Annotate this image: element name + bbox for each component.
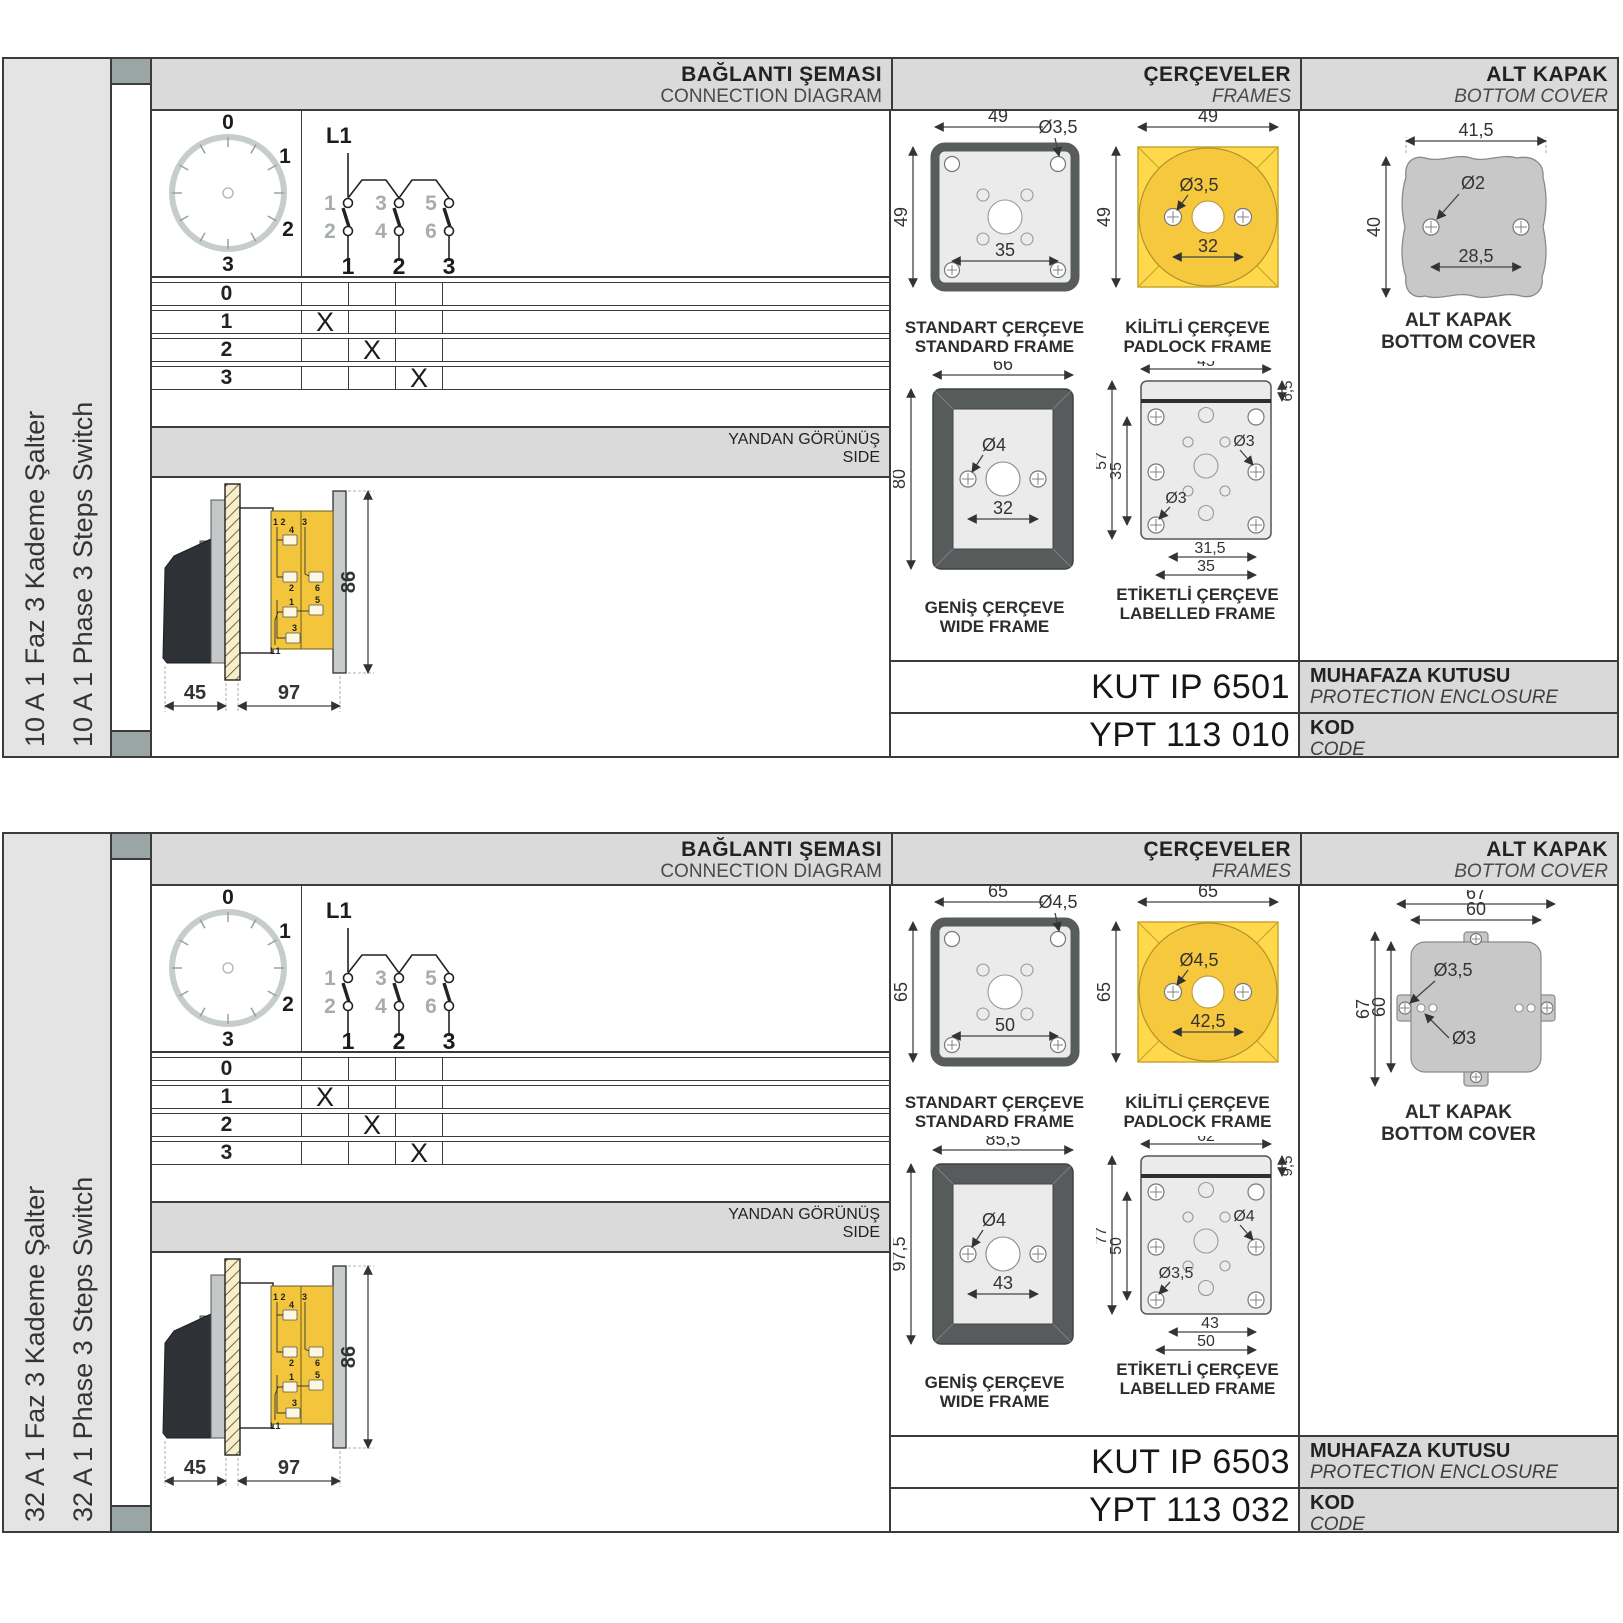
- dial-position-0: 0: [222, 886, 234, 909]
- dim-frame-height: 65: [1096, 982, 1114, 1002]
- standard-frame-caption: STANDART ÇERÇEVE STANDARD FRAME: [893, 1093, 1096, 1131]
- terminal-3-label: 3: [292, 1398, 297, 1408]
- terminal-3-top-label: 3: [302, 517, 307, 527]
- dim-frame-width: 62: [1197, 1136, 1215, 1145]
- diagram-row: 0 1 2 3 L1: [152, 886, 889, 1053]
- side-view-header: YANDAN GÖRÜNÜŞ SIDE: [152, 1201, 889, 1253]
- caption-en: WIDE FRAME: [893, 617, 1096, 636]
- terminal-3-top-label: 3: [302, 1292, 307, 1302]
- enclosure-label-tr: MUHAFAZA KUTUSU: [1310, 665, 1617, 687]
- standard-frame: 49 Ø3,5 49 35 STANDART ÇERÇEVE STANDARD …: [893, 111, 1096, 356]
- dim-hole-diameter: Ø4,5: [1038, 892, 1077, 912]
- dim-body-depth: 97: [278, 1457, 300, 1479]
- enclosure-code: KUT IP 6501: [1091, 668, 1290, 707]
- caption-tr: KİLİTLİ ÇERÇEVE: [1096, 318, 1299, 337]
- caption-tr: ALT KAPAK: [1300, 1102, 1617, 1124]
- caption-en: BOTTOM COVER: [1300, 332, 1617, 354]
- pole-1-label: 1: [342, 253, 355, 276]
- dial-cell: 0 1 2 3: [152, 111, 302, 276]
- dim-hole-right: Ø3: [1233, 433, 1254, 450]
- connection-diagram: L1: [302, 111, 889, 276]
- terminal-4-label: 4: [289, 525, 294, 535]
- dial-cell: 0 1 2 3: [152, 886, 302, 1051]
- dim-hole-pitch: 43: [993, 1273, 1013, 1293]
- dim-cover-width-inner: 60: [1465, 899, 1485, 919]
- dim-hole-bottom: Ø3,5: [1159, 1265, 1194, 1282]
- contact-6-label: 6: [425, 220, 437, 243]
- terminal-pair-label: 1 2: [273, 1292, 286, 1302]
- dim-hole-bottom: Ø3: [1165, 490, 1186, 507]
- header-cover-en: BOTTOM COVER: [1302, 86, 1608, 107]
- bottom-cover-cell: 67 60 67 60 Ø3,5 Ø3 ALT KAPAK BOTTOM COV…: [1300, 890, 1617, 1146]
- cover-caption: ALT KAPAK BOTTOM COVER: [1300, 310, 1617, 354]
- wide-frame-caption: GENİŞ ÇERÇEVE WIDE FRAME: [893, 598, 1096, 636]
- cell: [349, 1142, 396, 1164]
- side-view-title-en: SIDE: [152, 1224, 880, 1242]
- padlock-frame: Ø4,5 65 65 42,5 KİLİTLİ ÇERÇEVE PADLOCK …: [1096, 886, 1299, 1131]
- wide-frame-drawing: Ø4 66 80 32: [893, 361, 1096, 596]
- wide-frame-drawing: Ø4 85,5 97,5 43: [893, 1136, 1096, 1371]
- wide-frame-caption: GENİŞ ÇERÇEVE WIDE FRAME: [893, 1373, 1096, 1411]
- side-view-header: YANDAN GÖRÜNÜŞ SIDE: [152, 426, 889, 478]
- diagram-row: 0 1 2 3 L1: [152, 111, 889, 278]
- contact-5-label: 5: [425, 192, 437, 215]
- dim-pitch-2: 35: [1197, 558, 1215, 575]
- table-row: 3 X: [152, 1141, 889, 1165]
- terminal-2-label: 2: [289, 1358, 294, 1368]
- dim-frame-height: 97,5: [893, 1236, 909, 1271]
- caption-en: LABELLED FRAME: [1096, 1379, 1299, 1398]
- contact-3-label: 3: [375, 967, 387, 990]
- dim-hole-pitch-v: 50: [1108, 1237, 1125, 1255]
- header-connection-tr: BAĞLANTI ŞEMASI: [152, 63, 882, 86]
- side-view-cell: 1 2 3 4 2 6 1 5 3 L1 45 97: [152, 480, 889, 756]
- enclosure-label-cell: MUHAFAZA KUTUSU PROTECTION ENCLOSURE: [1300, 1435, 1617, 1487]
- side-view-drawing: 1 2 3 4 2 6 1 5 3 L1 45 97: [152, 1255, 889, 1531]
- table-row: 0: [152, 282, 889, 306]
- header-connection-tr: BAĞLANTI ŞEMASI: [152, 838, 882, 861]
- enclosure-label-en: PROTECTION ENCLOSURE: [1310, 1462, 1617, 1483]
- header-cover-tr: ALT KAPAK: [1302, 838, 1608, 861]
- connection-diagram: L1: [302, 886, 889, 1051]
- dim-hole-diameter: Ø4: [982, 1210, 1006, 1230]
- dim-frame-width: 49: [1198, 111, 1218, 126]
- product-label-english: 32 A 1 Phase 3 Steps Switch: [68, 1177, 99, 1522]
- terminal-1-label: 1: [289, 1372, 294, 1382]
- dim-pitch-1: 43: [1201, 1315, 1219, 1332]
- caption-en: STANDARD FRAME: [893, 337, 1096, 356]
- enclosure-label-tr: MUHAFAZA KUTUSU: [1310, 1440, 1617, 1462]
- dim-hole-pitch: 35: [995, 240, 1015, 260]
- cell: [396, 1058, 443, 1080]
- dim-cover-height: 40: [1364, 217, 1384, 237]
- dim-hole-right: Ø4: [1233, 1208, 1254, 1225]
- dim-frame-width: 85,5: [985, 1136, 1020, 1149]
- cell: [302, 339, 349, 361]
- terminal-2-label: 2: [289, 583, 294, 593]
- terminal-l1-label: L1: [270, 646, 281, 656]
- table-row: 2 X: [152, 338, 889, 362]
- cell-empty: [443, 1058, 889, 1080]
- terminal-l1-label: L1: [270, 1421, 281, 1431]
- enclosure-code: KUT IP 6503: [1091, 1443, 1290, 1482]
- dial-position-3: 3: [222, 253, 234, 276]
- contact-1-label: 1: [324, 192, 336, 215]
- standard-frame-caption: STANDART ÇERÇEVE STANDARD FRAME: [893, 318, 1096, 356]
- labelled-frame: 62 9,5 77 50 Ø4 Ø3,5 43 50: [1096, 1136, 1299, 1398]
- frames-column: 49 Ø3,5 49 35 STANDART ÇERÇEVE STANDARD …: [891, 111, 1300, 756]
- labelled-frame-drawing: 45 6,5 57 35 Ø3 Ø3 31,5 35: [1096, 361, 1299, 583]
- pole-2-label: 2: [393, 253, 406, 276]
- row-label: 1: [152, 1086, 302, 1108]
- terminal-pair-label: 1 2: [273, 517, 286, 527]
- header-connection-en: CONNECTION DIAGRAM: [152, 86, 882, 107]
- row-label: 1: [152, 311, 302, 333]
- table-row: 2 X: [152, 1113, 889, 1137]
- caption-en: PADLOCK FRAME: [1096, 1112, 1299, 1131]
- padlock-frame-drawing: Ø3,5 49 49 32: [1096, 111, 1299, 316]
- dim-body-height: 86: [338, 1346, 360, 1368]
- cell: [349, 311, 396, 333]
- padlock-frame-caption: KİLİTLİ ÇERÇEVE PADLOCK FRAME: [1096, 318, 1299, 356]
- caption-tr: STANDART ÇERÇEVE: [893, 318, 1096, 337]
- dial-position-0: 0: [222, 111, 234, 134]
- contact-4-label: 4: [375, 220, 387, 243]
- dim-cover-width: 41,5: [1458, 120, 1493, 140]
- dim-frame-width: 65: [1198, 886, 1218, 901]
- cell: [396, 311, 443, 333]
- cell: [302, 1058, 349, 1080]
- cell: [349, 283, 396, 305]
- product-label-english: 10 A 1 Phase 3 Steps Switch: [68, 402, 99, 747]
- side-view-drawing: 1 2 3 4 2 6 1 5 3 L1 45 97: [152, 480, 889, 756]
- contact-3-label: 3: [375, 192, 387, 215]
- dim-frame-width: 66: [993, 361, 1013, 374]
- row-label: 2: [152, 1114, 302, 1136]
- product-block-32a: 32 A 1 Faz 3 Kademe Şalter 32 A 1 Phase …: [2, 832, 1619, 1533]
- product-code: YPT 113 032: [1089, 1491, 1290, 1530]
- dim-cover-hole-1: Ø3,5: [1433, 960, 1472, 980]
- header-frames-tr: ÇERÇEVELER: [893, 63, 1291, 86]
- dim-hole-pitch-v: 35: [1108, 462, 1125, 480]
- header-connection: BAĞLANTI ŞEMASI CONNECTION DIAGRAM: [152, 59, 891, 111]
- cell: X: [302, 1086, 349, 1108]
- side-view-title-en: SIDE: [152, 449, 880, 467]
- product-label-turkish: 10 A 1 Faz 3 Kademe Şalter: [20, 411, 51, 747]
- pole-3-label: 3: [443, 1028, 456, 1051]
- contacts-cell: L1: [302, 111, 889, 276]
- code-value-row: YPT 113 010: [891, 712, 1298, 756]
- padlock-frame-caption: KİLİTLİ ÇERÇEVE PADLOCK FRAME: [1096, 1093, 1299, 1131]
- cell: [302, 1142, 349, 1164]
- cell-empty: [443, 311, 889, 333]
- padlock-frame: Ø3,5 49 49 32 KİLİTLİ ÇERÇEVE PADLOCK FR…: [1096, 111, 1299, 356]
- caption-tr: STANDART ÇERÇEVE: [893, 1093, 1096, 1112]
- bottom-cover-drawing: 67 60 67 60 Ø3,5 Ø3: [1301, 890, 1617, 1102]
- labelled-frame-caption: ETİKETLİ ÇERÇEVE LABELLED FRAME: [1096, 1360, 1299, 1398]
- enclosure-value-row: KUT IP 6501: [891, 660, 1298, 712]
- padlock-frame-drawing: Ø4,5 65 65 42,5: [1096, 886, 1299, 1091]
- header-frames-tr: ÇERÇEVELER: [893, 838, 1291, 861]
- dim-pitch-1: 31,5: [1194, 540, 1225, 557]
- gutter-square-bottom: [112, 730, 150, 756]
- cover-caption: ALT KAPAK BOTTOM COVER: [1300, 1102, 1617, 1146]
- header-frames-en: FRAMES: [893, 86, 1291, 107]
- line-l1-label: L1: [326, 123, 352, 148]
- dial-position-1: 1: [279, 145, 291, 168]
- terminal-6-label: 6: [315, 1358, 320, 1368]
- code-label-cell: KOD CODE: [1300, 1487, 1617, 1531]
- cell: X: [396, 1142, 443, 1164]
- side-view-title-tr: YANDAN GÖRÜNÜŞ: [152, 1206, 880, 1224]
- row-label: 3: [152, 367, 302, 389]
- caption-en: LABELLED FRAME: [1096, 604, 1299, 623]
- switch-dial-diagram: 0 1 2 3: [152, 886, 300, 1051]
- dim-frame-width: 49: [988, 111, 1008, 126]
- contact-6-label: 6: [425, 995, 437, 1018]
- table-row: 1 X: [152, 310, 889, 334]
- dim-hole-diameter: Ø3,5: [1179, 175, 1218, 195]
- line-l1-label: L1: [326, 898, 352, 923]
- switching-table: 0 1 X 2 X: [152, 278, 889, 390]
- product-code: YPT 113 010: [1089, 716, 1290, 755]
- pole-3-label: 3: [443, 253, 456, 276]
- cover-column: 41,5 40 Ø2 28,5 ALT KAPAK BOTTOM COVER M…: [1300, 111, 1617, 756]
- caption-tr: ETİKETLİ ÇERÇEVE: [1096, 1360, 1299, 1379]
- gutter-square-top: [112, 59, 150, 85]
- dim-front-depth: 45: [184, 1457, 206, 1479]
- cell: X: [349, 339, 396, 361]
- dial-position-1: 1: [279, 920, 291, 943]
- connection-column: 0 1 2 3 L1: [152, 111, 891, 756]
- cell-empty: [443, 283, 889, 305]
- enclosure-label-en: PROTECTION ENCLOSURE: [1310, 687, 1617, 708]
- dial-position-2: 2: [282, 993, 294, 1016]
- switch-dial-diagram: 0 1 2 3: [152, 111, 300, 276]
- gutter-column: [112, 834, 152, 1531]
- cell-empty: [443, 1086, 889, 1108]
- terminal-3-label: 3: [292, 623, 297, 633]
- code-label-en: CODE: [1310, 1514, 1617, 1535]
- cell: [396, 1114, 443, 1136]
- enclosure-value-row: KUT IP 6503: [891, 1435, 1298, 1487]
- dim-front-depth: 45: [184, 682, 206, 704]
- table-row: 3 X: [152, 366, 889, 390]
- cell: [396, 339, 443, 361]
- gutter-square-top: [112, 834, 150, 860]
- row-label: 0: [152, 1058, 302, 1080]
- header-cover: ALT KAPAK BOTTOM COVER: [1300, 834, 1617, 886]
- dim-body-height: 86: [338, 571, 360, 593]
- terminal-5-label: 5: [315, 595, 320, 605]
- caption-en: BOTTOM COVER: [1300, 1124, 1617, 1146]
- content-area: BAĞLANTI ŞEMASI CONNECTION DIAGRAM ÇERÇE…: [152, 834, 1617, 1531]
- cell: [302, 283, 349, 305]
- pole-1-label: 1: [342, 1028, 355, 1051]
- sidebar: 32 A 1 Faz 3 Kademe Şalter 32 A 1 Phase …: [4, 834, 112, 1531]
- enclosure-label-cell: MUHAFAZA KUTUSU PROTECTION ENCLOSURE: [1300, 660, 1617, 712]
- dim-top-band: 6,5: [1279, 381, 1296, 402]
- product-block-10a: 10 A 1 Faz 3 Kademe Şalter 10 A 1 Phase …: [2, 57, 1619, 758]
- cell: [349, 367, 396, 389]
- dial-position-2: 2: [282, 218, 294, 241]
- terminal-6-label: 6: [315, 583, 320, 593]
- header-cover-tr: ALT KAPAK: [1302, 63, 1608, 86]
- dim-hole-pitch: 50: [995, 1015, 1015, 1035]
- cover-column: 67 60 67 60 Ø3,5 Ø3 ALT KAPAK BOTTOM COV…: [1300, 886, 1617, 1531]
- cell: [349, 1086, 396, 1108]
- contact-1-label: 1: [324, 967, 336, 990]
- contact-2-label: 2: [324, 995, 336, 1018]
- switching-table: 0 1 X 2 X: [152, 1053, 889, 1165]
- caption-tr: ETİKETLİ ÇERÇEVE: [1096, 585, 1299, 604]
- dim-hole-diameter: Ø4,5: [1179, 950, 1218, 970]
- terminal-5-label: 5: [315, 1370, 320, 1380]
- caption-en: STANDARD FRAME: [893, 1112, 1096, 1131]
- caption-tr: GENİŞ ÇERÇEVE: [893, 1373, 1096, 1392]
- dim-cover-hole-2: Ø3: [1451, 1028, 1475, 1048]
- connection-column: 0 1 2 3 L1: [152, 886, 891, 1531]
- dial-position-3: 3: [222, 1028, 234, 1051]
- contact-2-label: 2: [324, 220, 336, 243]
- dim-cover-pitch: 28,5: [1458, 246, 1493, 266]
- header-frames: ÇERÇEVELER FRAMES: [891, 834, 1300, 886]
- standard-frame: 65 Ø4,5 65 50 STANDART ÇERÇEVE STANDARD …: [893, 886, 1096, 1131]
- bottom-cover-drawing: 41,5 40 Ø2 28,5: [1301, 115, 1617, 310]
- pole-2-label: 2: [393, 1028, 406, 1051]
- product-label-turkish: 32 A 1 Faz 3 Kademe Şalter: [20, 1186, 51, 1522]
- cell: X: [302, 311, 349, 333]
- cell-empty: [443, 1114, 889, 1136]
- content-area: BAĞLANTI ŞEMASI CONNECTION DIAGRAM ÇERÇE…: [152, 59, 1617, 756]
- dim-hole-pitch: 32: [1198, 236, 1218, 256]
- table-row: 1 X: [152, 1085, 889, 1109]
- side-view-title-tr: YANDAN GÖRÜNÜŞ: [152, 431, 880, 449]
- header-connection-en: CONNECTION DIAGRAM: [152, 861, 882, 882]
- dim-hole-diameter: Ø3,5: [1038, 117, 1077, 137]
- code-label-en: CODE: [1310, 739, 1617, 760]
- header-frames-en: FRAMES: [893, 861, 1291, 882]
- cell: [396, 1086, 443, 1108]
- dim-cover-height-inner: 60: [1369, 997, 1389, 1017]
- caption-tr: ALT KAPAK: [1300, 310, 1617, 332]
- cell-empty: [443, 1142, 889, 1164]
- dim-frame-height: 49: [1096, 207, 1114, 227]
- terminal-4-label: 4: [289, 1300, 294, 1310]
- row-label: 2: [152, 339, 302, 361]
- caption-en: PADLOCK FRAME: [1096, 337, 1299, 356]
- frames-column: 65 Ø4,5 65 50 STANDART ÇERÇEVE STANDARD …: [891, 886, 1300, 1531]
- cell: X: [349, 1114, 396, 1136]
- gutter-square-bottom: [112, 1505, 150, 1531]
- cell-empty: [443, 367, 889, 389]
- caption-tr: GENİŞ ÇERÇEVE: [893, 598, 1096, 617]
- header-cover-en: BOTTOM COVER: [1302, 861, 1608, 882]
- labelled-frame: 45 6,5 57 35 Ø3 Ø3 31,5 35: [1096, 361, 1299, 623]
- standard-frame-drawing: 65 Ø4,5 65 50: [893, 886, 1096, 1091]
- cell: [302, 1114, 349, 1136]
- dim-cover-hole: Ø2: [1460, 173, 1484, 193]
- code-label-tr: KOD: [1310, 717, 1617, 739]
- wide-frame: Ø4 66 80 32 GENİŞ ÇERÇEVE WIDE FRAME: [893, 361, 1096, 636]
- contacts-cell: L1: [302, 886, 889, 1051]
- cell: [349, 1058, 396, 1080]
- sidebar: 10 A 1 Faz 3 Kademe Şalter 10 A 1 Phase …: [4, 59, 112, 756]
- code-value-row: YPT 113 032: [891, 1487, 1298, 1531]
- dim-hole-diameter: Ø4: [982, 435, 1006, 455]
- cell: [302, 367, 349, 389]
- dim-frame-height: 49: [893, 207, 911, 227]
- header-connection: BAĞLANTI ŞEMASI CONNECTION DIAGRAM: [152, 834, 891, 886]
- header-cover: ALT KAPAK BOTTOM COVER: [1300, 59, 1617, 111]
- caption-en: WIDE FRAME: [893, 1392, 1096, 1411]
- dim-frame-height: 65: [893, 982, 911, 1002]
- standard-frame-drawing: 49 Ø3,5 49 35: [893, 111, 1096, 316]
- contact-4-label: 4: [375, 995, 387, 1018]
- dim-pitch-2: 50: [1197, 1333, 1215, 1350]
- labelled-frame-caption: ETİKETLİ ÇERÇEVE LABELLED FRAME: [1096, 585, 1299, 623]
- dim-frame-width: 65: [988, 886, 1008, 901]
- bottom-cover-cell: 41,5 40 Ø2 28,5 ALT KAPAK BOTTOM COVER: [1300, 115, 1617, 354]
- dim-frame-width: 45: [1197, 361, 1215, 370]
- caption-tr: KİLİTLİ ÇERÇEVE: [1096, 1093, 1299, 1112]
- dim-frame-height: 80: [893, 469, 909, 489]
- code-label-tr: KOD: [1310, 1492, 1617, 1514]
- dim-body-depth: 97: [278, 682, 300, 704]
- cell: [396, 283, 443, 305]
- terminal-1-label: 1: [289, 597, 294, 607]
- row-label: 3: [152, 1142, 302, 1164]
- side-view-cell: 1 2 3 4 2 6 1 5 3 L1 45 97: [152, 1255, 889, 1531]
- code-label-cell: KOD CODE: [1300, 712, 1617, 756]
- labelled-frame-drawing: 62 9,5 77 50 Ø4 Ø3,5 43 50: [1096, 1136, 1299, 1358]
- cell-empty: [443, 339, 889, 361]
- gutter-column: [112, 59, 152, 756]
- dim-hole-pitch: 42,5: [1190, 1011, 1225, 1031]
- row-label: 0: [152, 283, 302, 305]
- dim-hole-pitch: 32: [993, 498, 1013, 518]
- contact-5-label: 5: [425, 967, 437, 990]
- dim-top-band: 9,5: [1279, 1156, 1296, 1177]
- wide-frame: Ø4 85,5 97,5 43 GENİŞ ÇERÇEVE WIDE FRAME: [893, 1136, 1096, 1411]
- cell: X: [396, 367, 443, 389]
- header-frames: ÇERÇEVELER FRAMES: [891, 59, 1300, 111]
- table-row: 0: [152, 1057, 889, 1081]
